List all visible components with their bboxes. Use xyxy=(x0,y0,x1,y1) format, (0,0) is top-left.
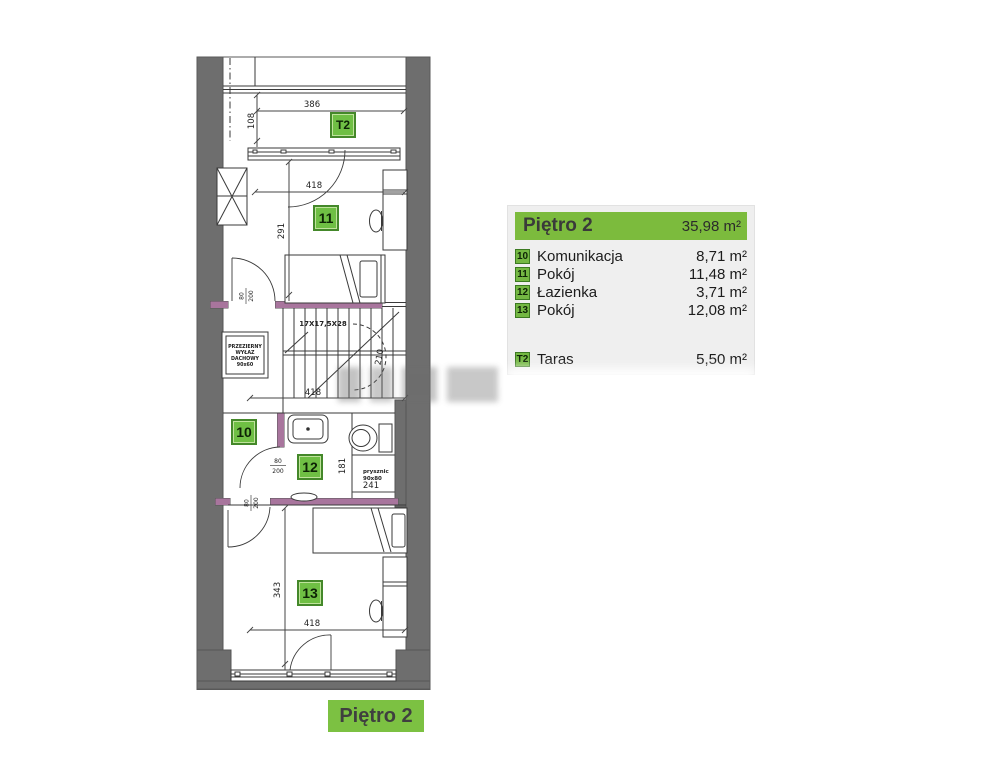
furniture xyxy=(217,168,407,637)
legend-room-name: Pokój xyxy=(537,266,689,283)
floor-title-label: Piętro 2 xyxy=(328,700,424,732)
door-height-label: 200 xyxy=(253,497,260,509)
dim-terrace-width: 386 xyxy=(304,100,320,110)
door-width-label: 80 xyxy=(239,292,246,300)
legend-row-terrace: T2 Taras 5,50 m² xyxy=(515,350,747,368)
room-badge-11: 11 xyxy=(313,205,339,231)
legend-room-area: 12,08 m² xyxy=(688,302,747,319)
dim-room13-width: 418 xyxy=(304,619,320,629)
door-height-label: 200 xyxy=(272,468,284,475)
dim-terrace-depth: 108 xyxy=(247,113,257,129)
legend-row-10: 10 Komunikacja 8,71 m² xyxy=(515,247,747,265)
skylight-line2: WYŁAZ xyxy=(235,350,255,356)
legend-total-area: 35,98 m² xyxy=(682,218,741,235)
dim-room11-width: 418 xyxy=(306,181,322,191)
room-badge-12: 12 xyxy=(297,454,323,480)
skylight-line4: 90x60 xyxy=(237,362,254,368)
stairs-spec-label: 17X17,5X28 xyxy=(299,320,347,328)
legend-panel: Piętro 2 35,98 m² 10 Komunikacja 8,71 m²… xyxy=(507,205,755,375)
dim-bath-width: 241 xyxy=(363,481,379,491)
legend-row-12: 12 Łazienka 3,71 m² xyxy=(515,283,747,301)
legend-rows: 10 Komunikacja 8,71 m² 11 Pokój 11,48 m²… xyxy=(515,247,747,368)
door-width-label: 80 xyxy=(274,458,282,465)
room-badge-terrace: T2 xyxy=(330,112,356,138)
legend-room-name: Taras xyxy=(537,351,696,368)
dim-hall-width: 418 xyxy=(305,388,321,398)
room-badge-13: 13 xyxy=(297,580,323,606)
dim-stairs-clearance: 210 xyxy=(374,348,387,366)
room-badge-10: 10 xyxy=(231,419,257,445)
skylight-line3: DACHOWY xyxy=(231,356,260,362)
dim-room13-depth: 343 xyxy=(273,582,283,598)
legend-room-area: 11,48 m² xyxy=(689,266,747,283)
legend-badge-11: 11 xyxy=(515,267,530,282)
shower-line2: 90x80 xyxy=(363,476,382,482)
legend-row-11: 11 Pokój 11,48 m² xyxy=(515,265,747,283)
legend-badge-13: 13 xyxy=(515,303,530,318)
legend-room-name: Łazienka xyxy=(537,284,696,301)
shower-label: prysznic 90x80 xyxy=(363,469,389,482)
legend-row-13: 13 Pokój 12,08 m² xyxy=(515,301,747,319)
legend-title: Piętro 2 xyxy=(523,215,593,237)
legend-room-name: Komunikacja xyxy=(537,248,696,265)
skylight-line1: PRZEZIERNY xyxy=(228,344,262,350)
dim-room11-depth: 291 xyxy=(277,223,287,239)
dim-bath-depth: 181 xyxy=(338,458,348,474)
legend-room-area: 5,50 m² xyxy=(696,351,747,368)
legend-badge-10: 10 xyxy=(515,249,530,264)
legend-badge-terrace: T2 xyxy=(515,352,530,367)
watermark-remnant-dark xyxy=(338,367,498,402)
watermark-remnant-light xyxy=(506,368,756,392)
door-label-bathroom: 80 200 xyxy=(270,458,286,475)
legend-room-name: Pokój xyxy=(537,302,688,319)
legend-badge-12: 12 xyxy=(515,285,530,300)
shower-line1: prysznic xyxy=(363,469,389,475)
legend-room-area: 8,71 m² xyxy=(696,248,747,265)
legend-room-area: 3,71 m² xyxy=(696,284,747,301)
door-width-label: 80 xyxy=(244,499,251,507)
legend-header: Piętro 2 35,98 m² xyxy=(515,212,747,240)
door-label-room11: 80 200 xyxy=(239,288,256,304)
door-height-label: 200 xyxy=(248,290,255,302)
floorplan-page: 386 108 418 291 17X17,5X28 210 418 181 2… xyxy=(0,0,989,765)
door-label-room13: 80 200 xyxy=(244,495,261,511)
